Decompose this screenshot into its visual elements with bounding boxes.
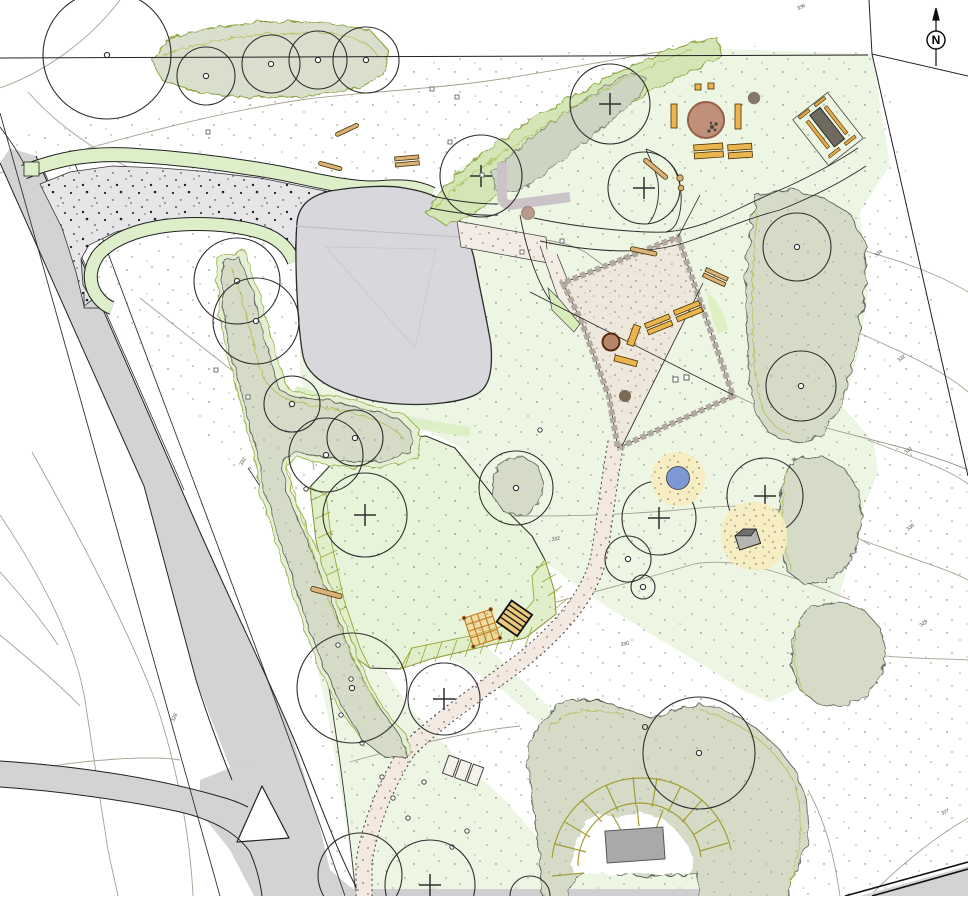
svg-text:N: N [932,33,941,47]
